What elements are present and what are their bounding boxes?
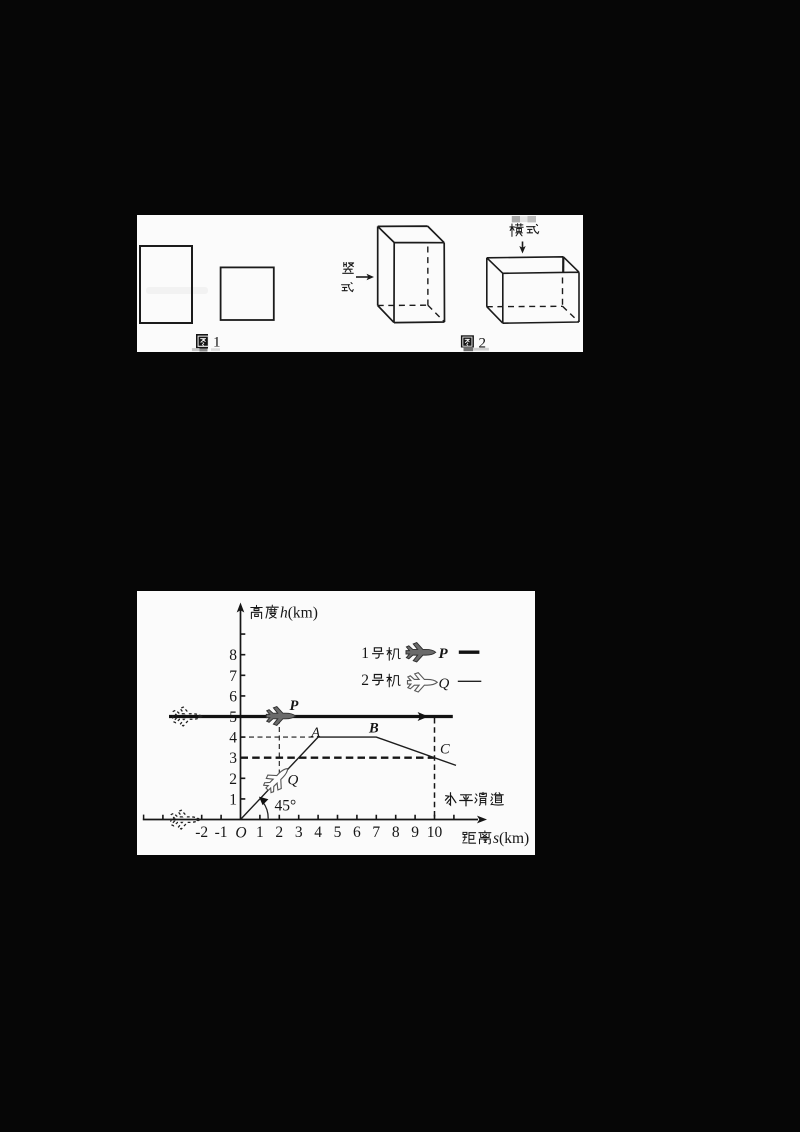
svg-text:-2: -2: [195, 824, 208, 841]
svg-text:P: P: [290, 698, 299, 714]
svg-text:7: 7: [372, 824, 380, 841]
svg-text:A: A: [311, 726, 321, 741]
svg-text:Q: Q: [288, 773, 299, 789]
svg-text:10: 10: [427, 824, 443, 841]
svg-text:2: 2: [275, 824, 283, 841]
svg-text:1: 1: [256, 824, 264, 841]
svg-text:2: 2: [361, 672, 369, 689]
svg-text:1: 1: [229, 791, 237, 808]
svg-text:3: 3: [229, 750, 237, 767]
svg-text:C: C: [440, 742, 450, 758]
svg-text:45°: 45°: [275, 798, 297, 815]
svg-text:8: 8: [229, 647, 237, 664]
svg-text:9: 9: [411, 824, 419, 841]
svg-text:B: B: [368, 721, 379, 737]
svg-text:6: 6: [229, 688, 237, 705]
svg-text:7: 7: [229, 668, 237, 685]
svg-text:1: 1: [361, 645, 369, 662]
svg-text:h(km): h(km): [280, 604, 318, 621]
svg-text:6: 6: [353, 824, 361, 841]
svg-text:4: 4: [314, 824, 322, 841]
svg-text:Q: Q: [439, 676, 450, 692]
svg-text:O: O: [235, 825, 246, 842]
svg-text:4: 4: [229, 730, 237, 747]
svg-text:2: 2: [229, 771, 237, 788]
svg-text:1: 1: [213, 335, 221, 351]
svg-text:8: 8: [392, 824, 400, 841]
svg-text:5: 5: [334, 824, 342, 841]
svg-text:P: P: [439, 646, 449, 662]
svg-text:-1: -1: [215, 824, 228, 841]
svg-text:3: 3: [295, 824, 303, 841]
svg-text:s(km): s(km): [493, 830, 529, 847]
